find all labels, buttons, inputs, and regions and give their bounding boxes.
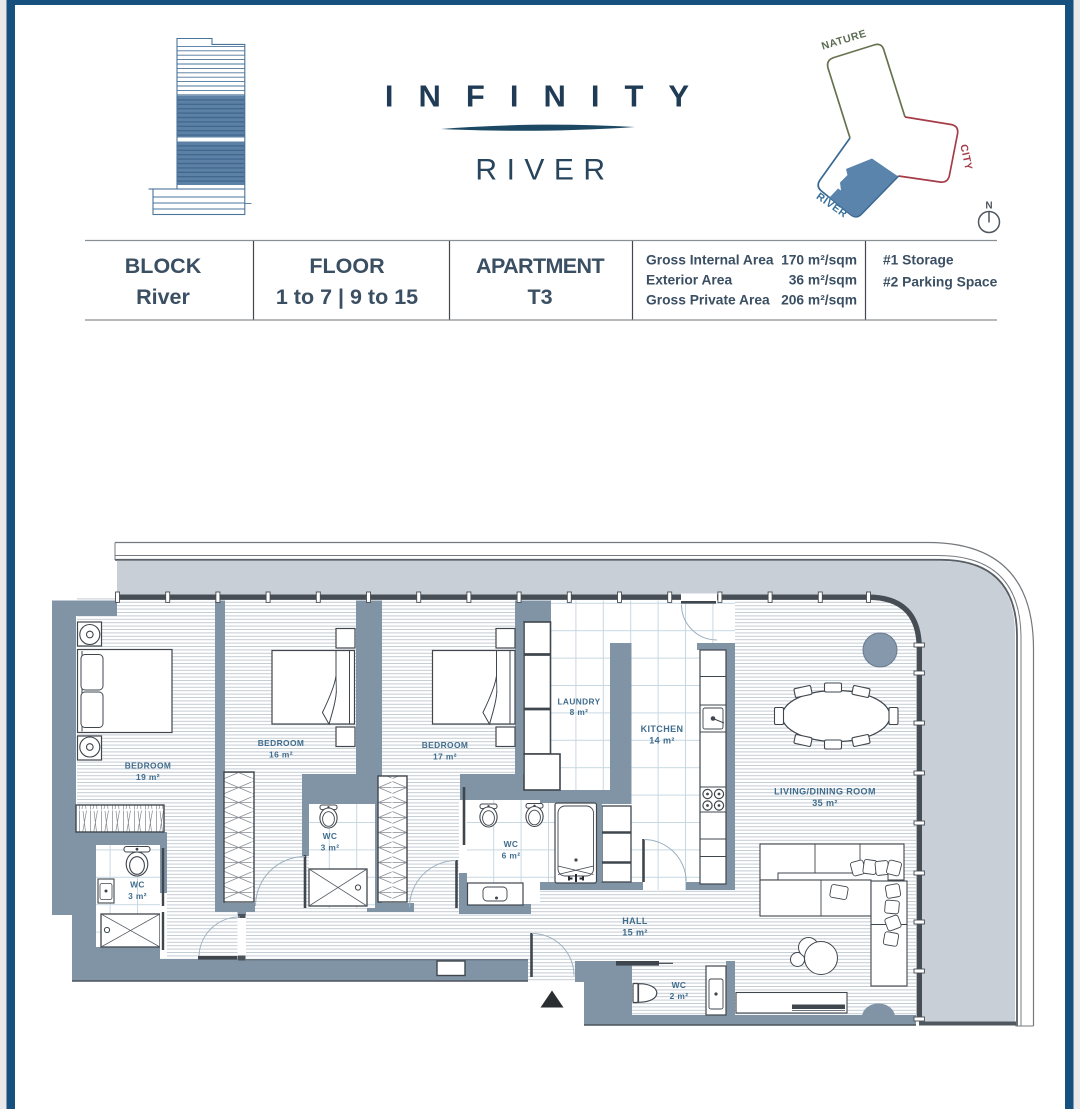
svg-text:8 m²: 8 m² [570,707,589,717]
svg-text:APARTMENT: APARTMENT [476,254,604,278]
svg-text:HALL: HALL [622,916,648,926]
svg-text:1 to 7 | 9 to 15: 1 to 7 | 9 to 15 [276,285,418,309]
svg-text:T3: T3 [527,285,552,309]
svg-text:BEDROOM: BEDROOM [422,740,469,750]
svg-text:3 m²: 3 m² [321,843,340,853]
svg-text:INFINITY: INFINITY [385,79,714,114]
svg-text:36 m²/sqm: 36 m²/sqm [789,273,857,288]
svg-text:WC: WC [672,980,687,990]
svg-text:LIVING/DINING ROOM: LIVING/DINING ROOM [774,787,876,797]
svg-text:BLOCK: BLOCK [125,254,202,278]
svg-text:14 m²: 14 m² [649,736,675,746]
svg-text:Exterior Area: Exterior Area [646,273,732,288]
svg-text:17 m²: 17 m² [433,752,457,762]
svg-text:19 m²: 19 m² [136,772,160,782]
svg-text:BEDROOM: BEDROOM [125,761,172,771]
svg-text:15 m²: 15 m² [622,928,648,938]
svg-text:Gross Internal Area: Gross Internal Area [646,253,774,268]
svg-text:Gross Private Area: Gross Private Area [646,293,770,308]
svg-text:3 m²: 3 m² [128,891,147,901]
svg-text:WC: WC [323,831,338,841]
svg-text:WC: WC [130,880,145,890]
svg-text:2 m²: 2 m² [670,991,689,1001]
svg-text:#2 Parking Space: #2 Parking Space [883,275,998,290]
svg-text:35 m²: 35 m² [812,798,838,808]
svg-text:16 m²: 16 m² [269,750,293,760]
svg-text:6 m²: 6 m² [502,851,521,861]
svg-text:206 m²/sqm: 206 m²/sqm [781,293,857,308]
svg-text:FLOOR: FLOOR [309,254,385,278]
svg-text:#1 Storage: #1 Storage [883,253,954,268]
svg-text:WC: WC [504,839,519,849]
svg-text:N: N [985,201,992,212]
svg-text:LAUNDRY: LAUNDRY [557,697,600,707]
svg-text:RIVER: RIVER [475,154,614,187]
svg-text:KITCHEN: KITCHEN [641,724,684,734]
svg-text:170 m²/sqm: 170 m²/sqm [781,253,857,268]
svg-text:BEDROOM: BEDROOM [258,738,305,748]
svg-text:River: River [136,285,190,309]
